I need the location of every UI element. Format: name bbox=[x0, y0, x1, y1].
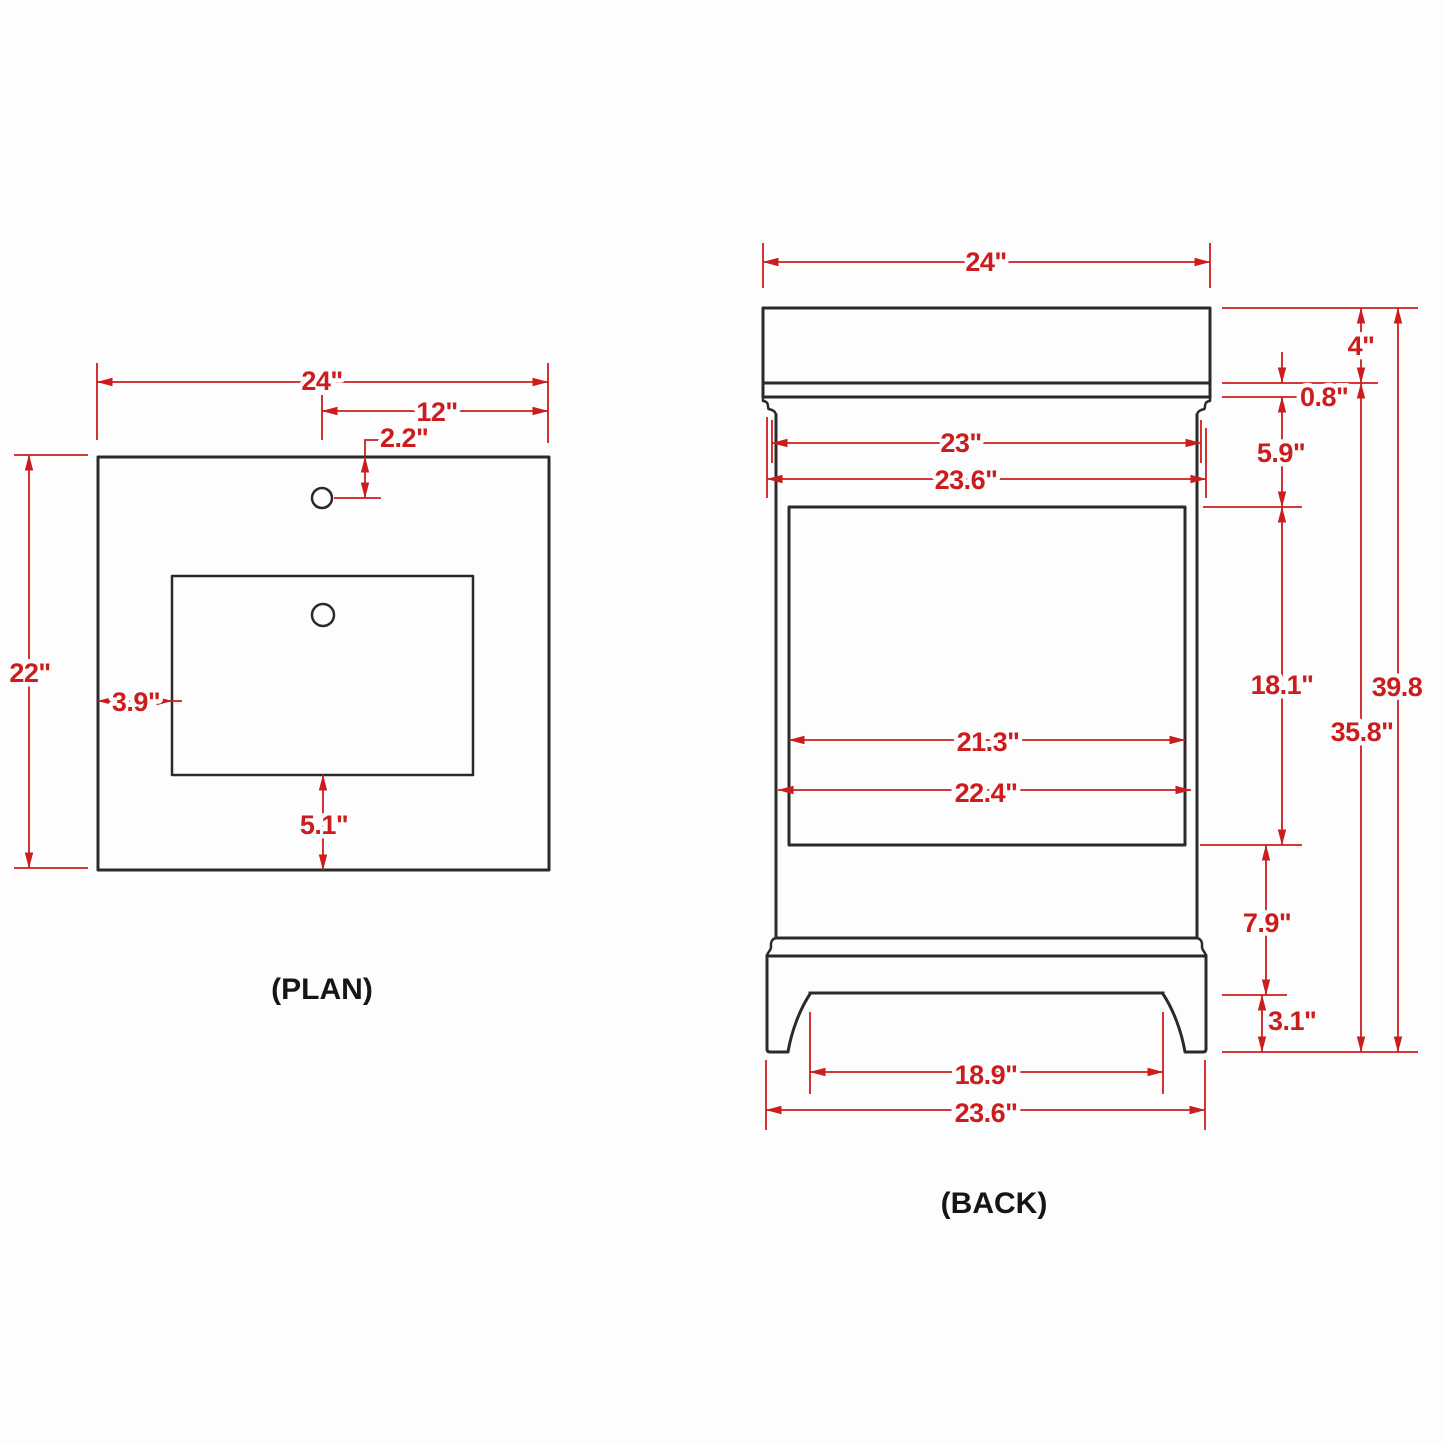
dim-back-base-height: 3.1" bbox=[1268, 1006, 1316, 1036]
dim-back-top-to-panel: 5.9" bbox=[1257, 438, 1305, 468]
dim-back-base-width: 23.6" bbox=[955, 1098, 1018, 1128]
dim-back-apron-height: 0.8" bbox=[1300, 382, 1348, 412]
back-right-corbel bbox=[1197, 397, 1210, 416]
dim-back-cabinet-height: 35.8" bbox=[1331, 717, 1394, 747]
back-left-corbel bbox=[763, 397, 776, 416]
technical-drawing-page: 24" 12" 2.2" 22" 3.9" 5.1" (PLAN) bbox=[0, 0, 1445, 1445]
back-view-label: (BACK) bbox=[941, 1187, 1048, 1220]
back-left-base-notch bbox=[767, 938, 776, 956]
vanity-dimension-drawing: 24" 12" 2.2" 22" 3.9" 5.1" (PLAN) bbox=[0, 0, 1445, 1445]
dim-back-cabinet-width: 23" bbox=[940, 428, 981, 458]
plan-view: 24" 12" 2.2" 22" 3.9" 5.1" (PLAN) bbox=[9, 363, 549, 1006]
dim-back-interior-width: 22.4" bbox=[955, 778, 1018, 808]
dim-plan-overall-depth: 22" bbox=[9, 658, 50, 688]
dim-back-overall-height: 39.8 bbox=[1372, 672, 1423, 702]
back-countertop bbox=[763, 308, 1210, 383]
back-right-foot bbox=[1163, 956, 1206, 1052]
dim-back-panel-to-base: 7.9" bbox=[1243, 908, 1291, 938]
dim-plan-overall-width: 24" bbox=[301, 366, 342, 396]
plan-sink-cutout bbox=[172, 576, 473, 775]
dim-plan-side-to-cutout: 3.9" bbox=[112, 687, 160, 717]
back-cabinet-outline bbox=[763, 308, 1210, 1052]
back-left-foot bbox=[767, 956, 810, 1052]
dim-back-countertop-width: 24" bbox=[965, 247, 1006, 277]
plan-drain-hole bbox=[312, 604, 334, 626]
plan-view-label: (PLAN) bbox=[271, 973, 373, 1006]
back-view: 24" 4" 0.8" 5.9" 23" 23.6" 18.1" 39.8 35… bbox=[763, 243, 1423, 1220]
dim-back-countertop-thickness: 4" bbox=[1348, 331, 1375, 361]
dim-plan-faucet-setback: 2.2" bbox=[380, 423, 428, 453]
dim-back-panel-width: 21.3" bbox=[957, 727, 1020, 757]
dim-back-feet-span: 18.9" bbox=[955, 1060, 1018, 1090]
back-right-base-notch bbox=[1197, 938, 1206, 956]
dim-back-panel-height: 18.1" bbox=[1251, 670, 1314, 700]
dim-plan-cutout-to-front: 5.1" bbox=[300, 810, 348, 840]
dim-back-cabinet-width-trim: 23.6" bbox=[935, 465, 998, 495]
plan-faucet-hole bbox=[312, 488, 332, 508]
back-dimension-lines bbox=[763, 243, 1418, 1130]
plan-dimension-lines bbox=[14, 363, 548, 870]
